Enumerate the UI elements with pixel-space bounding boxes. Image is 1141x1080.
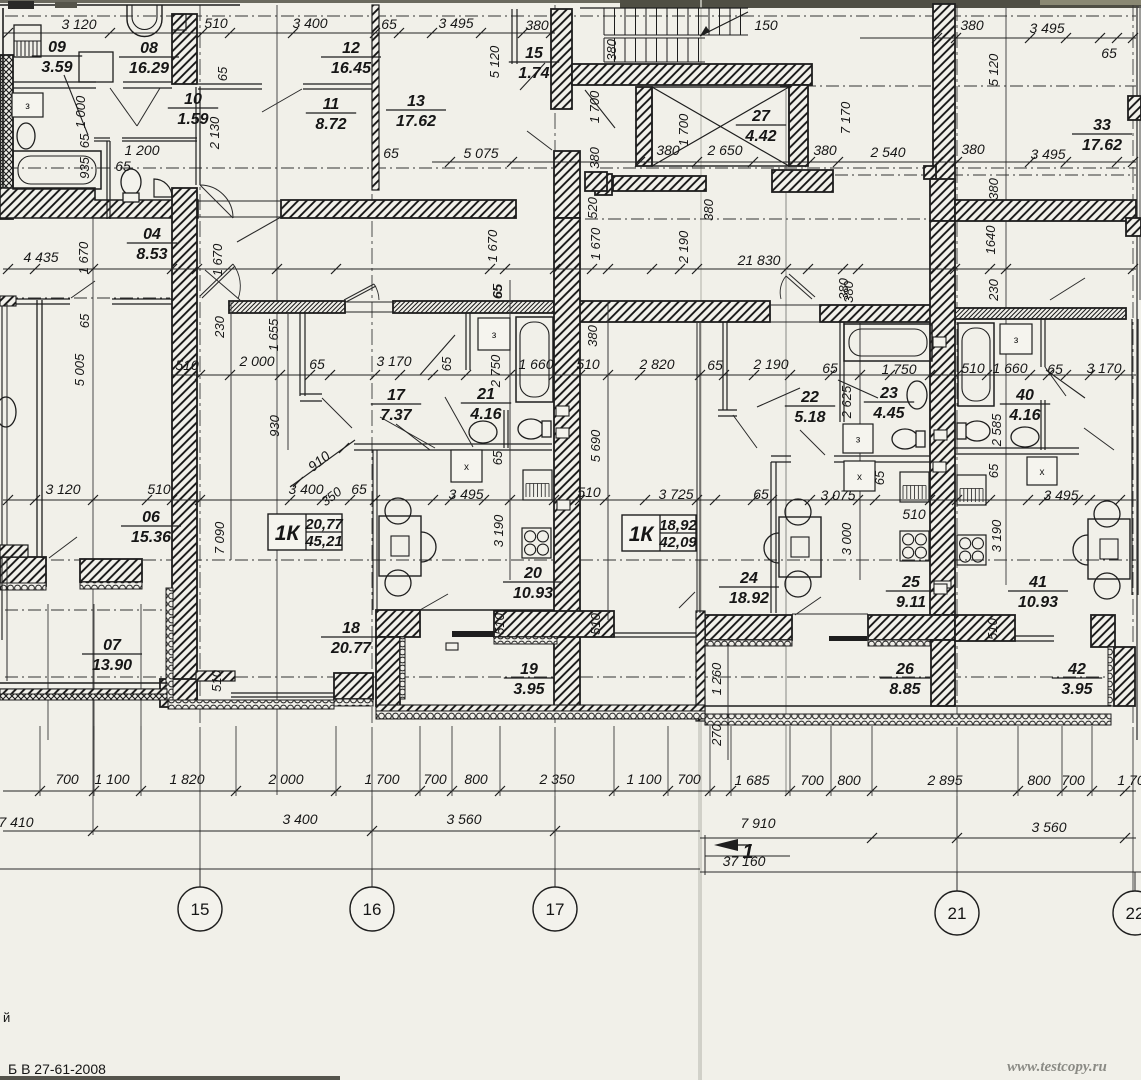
svg-text:1 260: 1 260 [709, 662, 724, 695]
svg-text:13.90: 13.90 [92, 657, 132, 674]
svg-text:18.92: 18.92 [729, 590, 769, 607]
svg-text:2 895: 2 895 [926, 772, 962, 788]
svg-text:510: 510 [985, 617, 1000, 639]
svg-text:2 130: 2 130 [207, 116, 222, 150]
svg-text:х: х [1040, 467, 1045, 478]
svg-text:1К: 1К [629, 523, 656, 546]
svg-text:2 000: 2 000 [267, 771, 303, 787]
svg-text:380: 380 [960, 17, 984, 33]
svg-text:700: 700 [423, 771, 447, 787]
svg-text:65: 65 [753, 486, 769, 502]
svg-text:21 830: 21 830 [737, 252, 781, 268]
svg-text:380: 380 [525, 17, 549, 33]
svg-text:1 700: 1 700 [587, 90, 602, 123]
svg-text:65: 65 [351, 481, 367, 497]
svg-text:26: 26 [895, 661, 914, 678]
svg-text:з: з [856, 435, 861, 446]
svg-text:3 400: 3 400 [288, 481, 323, 497]
svg-text:1 670: 1 670 [76, 241, 91, 274]
svg-text:65: 65 [381, 16, 397, 32]
svg-text:3 400: 3 400 [292, 15, 327, 31]
svg-text:1 100: 1 100 [94, 771, 129, 787]
svg-text:1 670: 1 670 [485, 229, 500, 262]
svg-text:2 000: 2 000 [238, 353, 274, 369]
svg-text:700: 700 [677, 771, 701, 787]
svg-text:380: 380 [986, 177, 1001, 199]
svg-text:1 700: 1 700 [364, 771, 399, 787]
svg-text:Б В 27-61-2008: Б В 27-61-2008 [8, 1061, 106, 1077]
svg-text:65: 65 [115, 158, 131, 174]
svg-text:65: 65 [383, 145, 399, 161]
svg-text:380: 380 [961, 141, 985, 157]
svg-text:07: 07 [103, 637, 122, 654]
svg-text:3 120: 3 120 [61, 16, 96, 32]
svg-text:3.59: 3.59 [41, 59, 72, 76]
svg-text:4.16: 4.16 [1008, 407, 1040, 424]
svg-text:й: й [3, 1010, 10, 1025]
svg-text:27: 27 [751, 108, 771, 125]
svg-text:х: х [464, 462, 469, 473]
svg-text:65: 65 [77, 133, 92, 148]
svg-text:45,21: 45,21 [304, 533, 343, 550]
svg-text:з: з [492, 330, 497, 341]
svg-text:510: 510 [175, 357, 199, 373]
svg-text:65: 65 [1047, 361, 1063, 377]
svg-text:24: 24 [739, 570, 758, 587]
svg-text:380: 380 [813, 142, 837, 158]
svg-text:510: 510 [961, 360, 985, 376]
svg-text:41: 41 [1028, 574, 1047, 591]
svg-text:3.95: 3.95 [513, 681, 545, 698]
svg-text:380: 380 [604, 38, 619, 60]
svg-text:1 670: 1 670 [210, 243, 225, 276]
svg-text:7 170: 7 170 [838, 101, 853, 134]
svg-text:230: 230 [212, 315, 227, 338]
svg-text:230: 230 [986, 278, 1001, 301]
svg-text:1.74: 1.74 [518, 65, 549, 82]
svg-text:1.59: 1.59 [177, 111, 208, 128]
svg-text:1 685: 1 685 [734, 772, 769, 788]
svg-text:22: 22 [800, 389, 819, 406]
svg-text:3 560: 3 560 [1031, 819, 1066, 835]
svg-text:65: 65 [707, 357, 723, 373]
svg-text:16: 16 [363, 900, 382, 919]
svg-text:2 350: 2 350 [538, 771, 574, 787]
svg-text:10: 10 [184, 91, 202, 108]
svg-text:09: 09 [48, 39, 66, 56]
svg-text:18: 18 [342, 620, 360, 637]
svg-text:х: х [857, 472, 862, 483]
svg-text:510: 510 [576, 356, 600, 372]
svg-text:06: 06 [142, 509, 160, 526]
svg-text:5 120: 5 120 [986, 53, 1001, 86]
svg-text:16.29: 16.29 [129, 60, 169, 77]
svg-text:65: 65 [77, 313, 92, 328]
svg-text:1 70: 1 70 [1117, 772, 1141, 788]
svg-text:8.85: 8.85 [889, 681, 921, 698]
svg-text:40: 40 [1015, 387, 1034, 404]
svg-text:25: 25 [901, 574, 921, 591]
svg-text:65: 65 [439, 356, 454, 371]
svg-text:3 170: 3 170 [376, 353, 411, 369]
svg-text:04: 04 [143, 226, 161, 243]
svg-text:700: 700 [1061, 772, 1085, 788]
svg-text:1 820: 1 820 [169, 771, 204, 787]
svg-text:3 400: 3 400 [282, 811, 317, 827]
svg-text:510: 510 [902, 506, 926, 522]
svg-text:2 650: 2 650 [706, 142, 742, 158]
svg-text:800: 800 [837, 772, 861, 788]
svg-text:510: 510 [577, 484, 601, 500]
svg-text:2 820: 2 820 [638, 356, 674, 372]
svg-text:33: 33 [1093, 117, 1111, 134]
svg-text:935: 935 [77, 156, 92, 178]
svg-text:380: 380 [587, 146, 602, 168]
svg-text:4.42: 4.42 [744, 128, 776, 145]
svg-text:3.95: 3.95 [1061, 681, 1093, 698]
svg-text:2 190: 2 190 [752, 356, 788, 372]
svg-text:7 910: 7 910 [740, 815, 775, 831]
svg-text:17.62: 17.62 [1082, 137, 1122, 154]
svg-text:1: 1 [742, 841, 753, 863]
svg-text:700: 700 [800, 772, 824, 788]
svg-text:520: 520 [585, 196, 600, 218]
svg-text:510: 510 [147, 481, 171, 497]
svg-text:4.45: 4.45 [872, 405, 905, 422]
svg-text:20: 20 [523, 565, 542, 582]
svg-text:3 495: 3 495 [1030, 146, 1065, 162]
svg-text:380: 380 [701, 198, 716, 220]
svg-text:3 075: 3 075 [820, 487, 855, 503]
svg-text:1 700: 1 700 [676, 113, 691, 146]
svg-text:65: 65 [490, 450, 505, 465]
svg-text:510: 510 [204, 15, 228, 31]
svg-text:1 660: 1 660 [518, 356, 553, 372]
svg-text:16.45: 16.45 [331, 60, 372, 77]
svg-text:7 090: 7 090 [212, 521, 227, 554]
svg-text:23: 23 [879, 385, 898, 402]
svg-text:9.11: 9.11 [896, 594, 926, 611]
svg-text:270: 270 [709, 723, 724, 746]
svg-text:3 170: 3 170 [1086, 360, 1121, 376]
svg-text:5 075: 5 075 [463, 145, 498, 161]
svg-text:3 120: 3 120 [45, 481, 80, 497]
svg-text:15: 15 [191, 900, 210, 919]
svg-text:з: з [1014, 335, 1019, 346]
svg-text:21: 21 [476, 386, 495, 403]
svg-text:21: 21 [948, 904, 967, 923]
svg-text:3 495: 3 495 [448, 486, 483, 502]
svg-text:15: 15 [525, 45, 544, 62]
svg-text:5 120: 5 120 [487, 45, 502, 78]
svg-text:3 495: 3 495 [438, 15, 473, 31]
svg-text:7 410: 7 410 [0, 814, 34, 830]
svg-text:5 005: 5 005 [72, 353, 87, 386]
svg-text:15.36: 15.36 [131, 529, 171, 546]
svg-text:18,92: 18,92 [659, 517, 697, 534]
svg-text:65: 65 [1101, 45, 1117, 61]
svg-text:08: 08 [140, 40, 158, 57]
svg-text:12: 12 [342, 40, 360, 57]
svg-text:17: 17 [546, 900, 565, 919]
svg-text:20,77: 20,77 [304, 516, 343, 533]
svg-text:10.93: 10.93 [513, 585, 553, 602]
svg-text:19: 19 [520, 661, 538, 678]
svg-text:3 000: 3 000 [839, 522, 854, 555]
svg-text:3 190: 3 190 [989, 519, 1004, 552]
svg-text:510: 510 [492, 612, 507, 634]
svg-text:380: 380 [585, 324, 600, 346]
svg-text:20.77: 20.77 [330, 640, 372, 657]
svg-text:з: з [25, 101, 30, 112]
svg-text:930: 930 [267, 414, 282, 436]
svg-text:4.16: 4.16 [469, 406, 501, 423]
svg-text:65: 65 [872, 470, 887, 485]
svg-text:800: 800 [464, 771, 488, 787]
svg-text:4 435: 4 435 [23, 249, 58, 265]
svg-text:2 625: 2 625 [839, 385, 854, 419]
svg-text:65: 65 [822, 360, 838, 376]
svg-text:65: 65 [215, 66, 230, 81]
svg-text:1640: 1640 [983, 225, 998, 255]
svg-text:150: 150 [754, 17, 778, 33]
svg-text:8.72: 8.72 [315, 116, 346, 133]
svg-text:22: 22 [1126, 904, 1141, 923]
svg-text:42: 42 [1067, 661, 1086, 678]
svg-text:3 725: 3 725 [658, 486, 693, 502]
svg-text:5.18: 5.18 [794, 409, 825, 426]
svg-text:3 190: 3 190 [491, 514, 506, 547]
svg-text:1 750: 1 750 [881, 361, 916, 377]
svg-text:2 540: 2 540 [869, 144, 905, 160]
svg-text:1 655: 1 655 [266, 318, 281, 351]
svg-text:380: 380 [841, 280, 856, 302]
svg-text:2 585: 2 585 [989, 413, 1004, 447]
svg-text:1К: 1К [275, 522, 302, 545]
svg-text:42,09: 42,09 [658, 534, 697, 551]
svg-text:65: 65 [309, 356, 325, 372]
svg-text:8.53: 8.53 [136, 246, 167, 263]
svg-text:700: 700 [55, 771, 79, 787]
svg-text:2 750: 2 750 [488, 354, 503, 388]
svg-text:1 000: 1 000 [73, 95, 88, 128]
svg-text:65: 65 [490, 283, 505, 298]
svg-text:13: 13 [407, 93, 425, 110]
svg-text:10.93: 10.93 [1018, 594, 1058, 611]
svg-text:7.37: 7.37 [380, 407, 412, 424]
svg-text:17.62: 17.62 [396, 113, 436, 130]
svg-text:1 660: 1 660 [992, 360, 1027, 376]
svg-text:1 200: 1 200 [124, 142, 159, 158]
svg-text:17: 17 [387, 387, 406, 404]
svg-text:3 560: 3 560 [446, 811, 481, 827]
svg-text:www.testcopy.ru: www.testcopy.ru [1007, 1059, 1107, 1075]
svg-text:65: 65 [986, 463, 1001, 478]
svg-text:3 495: 3 495 [1043, 487, 1078, 503]
svg-text:11: 11 [323, 96, 340, 113]
svg-text:1 100: 1 100 [626, 771, 661, 787]
svg-text:510: 510 [209, 669, 224, 691]
svg-text:510: 510 [588, 612, 603, 634]
svg-text:2 190: 2 190 [676, 230, 691, 264]
svg-text:800: 800 [1027, 772, 1051, 788]
svg-text:5 690: 5 690 [588, 429, 603, 462]
svg-text:3 495: 3 495 [1029, 20, 1064, 36]
svg-text:1 670: 1 670 [588, 227, 603, 260]
